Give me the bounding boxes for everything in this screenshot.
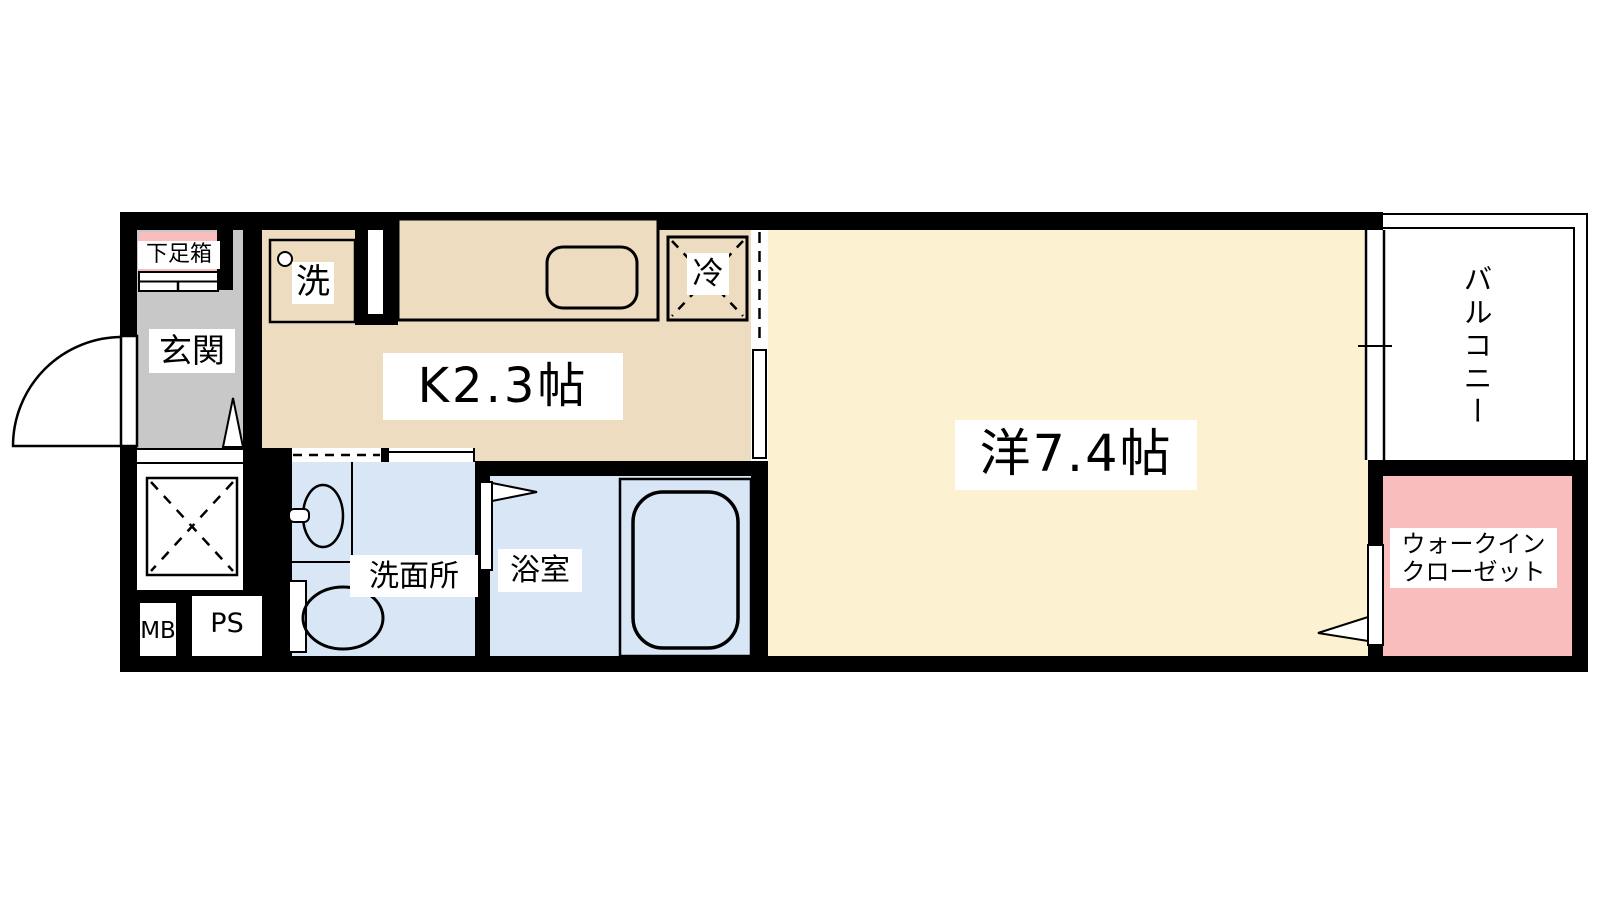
washroom-sliding-door-strip: [387, 448, 475, 462]
shaft-room: [137, 464, 243, 590]
balcony-label: バルコニー: [1452, 240, 1498, 452]
western-room-label: 洋7.4帖: [955, 420, 1197, 490]
walk-in-closet-label-line1: ウォークイン: [1402, 530, 1546, 558]
entrance-door-arc: [13, 337, 122, 446]
kitchen-partition-strip: [751, 230, 768, 461]
pipe-space-label: PS: [192, 600, 262, 648]
wall-bathroom-right: [751, 461, 768, 672]
wall-bathroom-top: [475, 461, 768, 476]
wall-wic-left-lower: [1368, 645, 1383, 672]
washroom-folding-door-strip: [292, 448, 381, 462]
entrance-door-leaf: [121, 336, 137, 446]
entrance-step: [137, 448, 243, 464]
entrance-label: 玄関: [149, 329, 235, 373]
floor-plan: 下足箱 玄関 洗 K2.3帖 冷 洋7.4帖 バルコニー ウォークイン クローゼ…: [0, 0, 1600, 900]
walk-in-closet-label: ウォークイン クローゼット: [1390, 528, 1557, 588]
wall-wic-left-upper: [1368, 476, 1383, 545]
meter-box-label: MB: [140, 614, 176, 650]
wall-top: [120, 212, 1383, 230]
wall-wic-top: [1368, 460, 1588, 476]
bathroom-label: 浴室: [498, 549, 582, 592]
wall-wic-right: [1572, 460, 1588, 672]
kitchen-label: K2.3帖: [383, 353, 623, 420]
wall-left-lower: [120, 447, 137, 672]
wall-washroom-left: [262, 448, 292, 672]
wall-left-upper: [120, 212, 137, 335]
wall-laundry-slot: [368, 230, 383, 314]
walk-in-closet-label-line2: クローゼット: [1402, 558, 1546, 586]
shoe-box-label: 下足箱: [138, 241, 220, 269]
washing-machine-label: 洗: [292, 262, 334, 304]
washroom-label: 洗面所: [350, 555, 478, 597]
kitchen-floor: [262, 230, 751, 461]
refrigerator-label: 冷: [687, 253, 729, 295]
wic-door-leaf: [1368, 545, 1383, 645]
